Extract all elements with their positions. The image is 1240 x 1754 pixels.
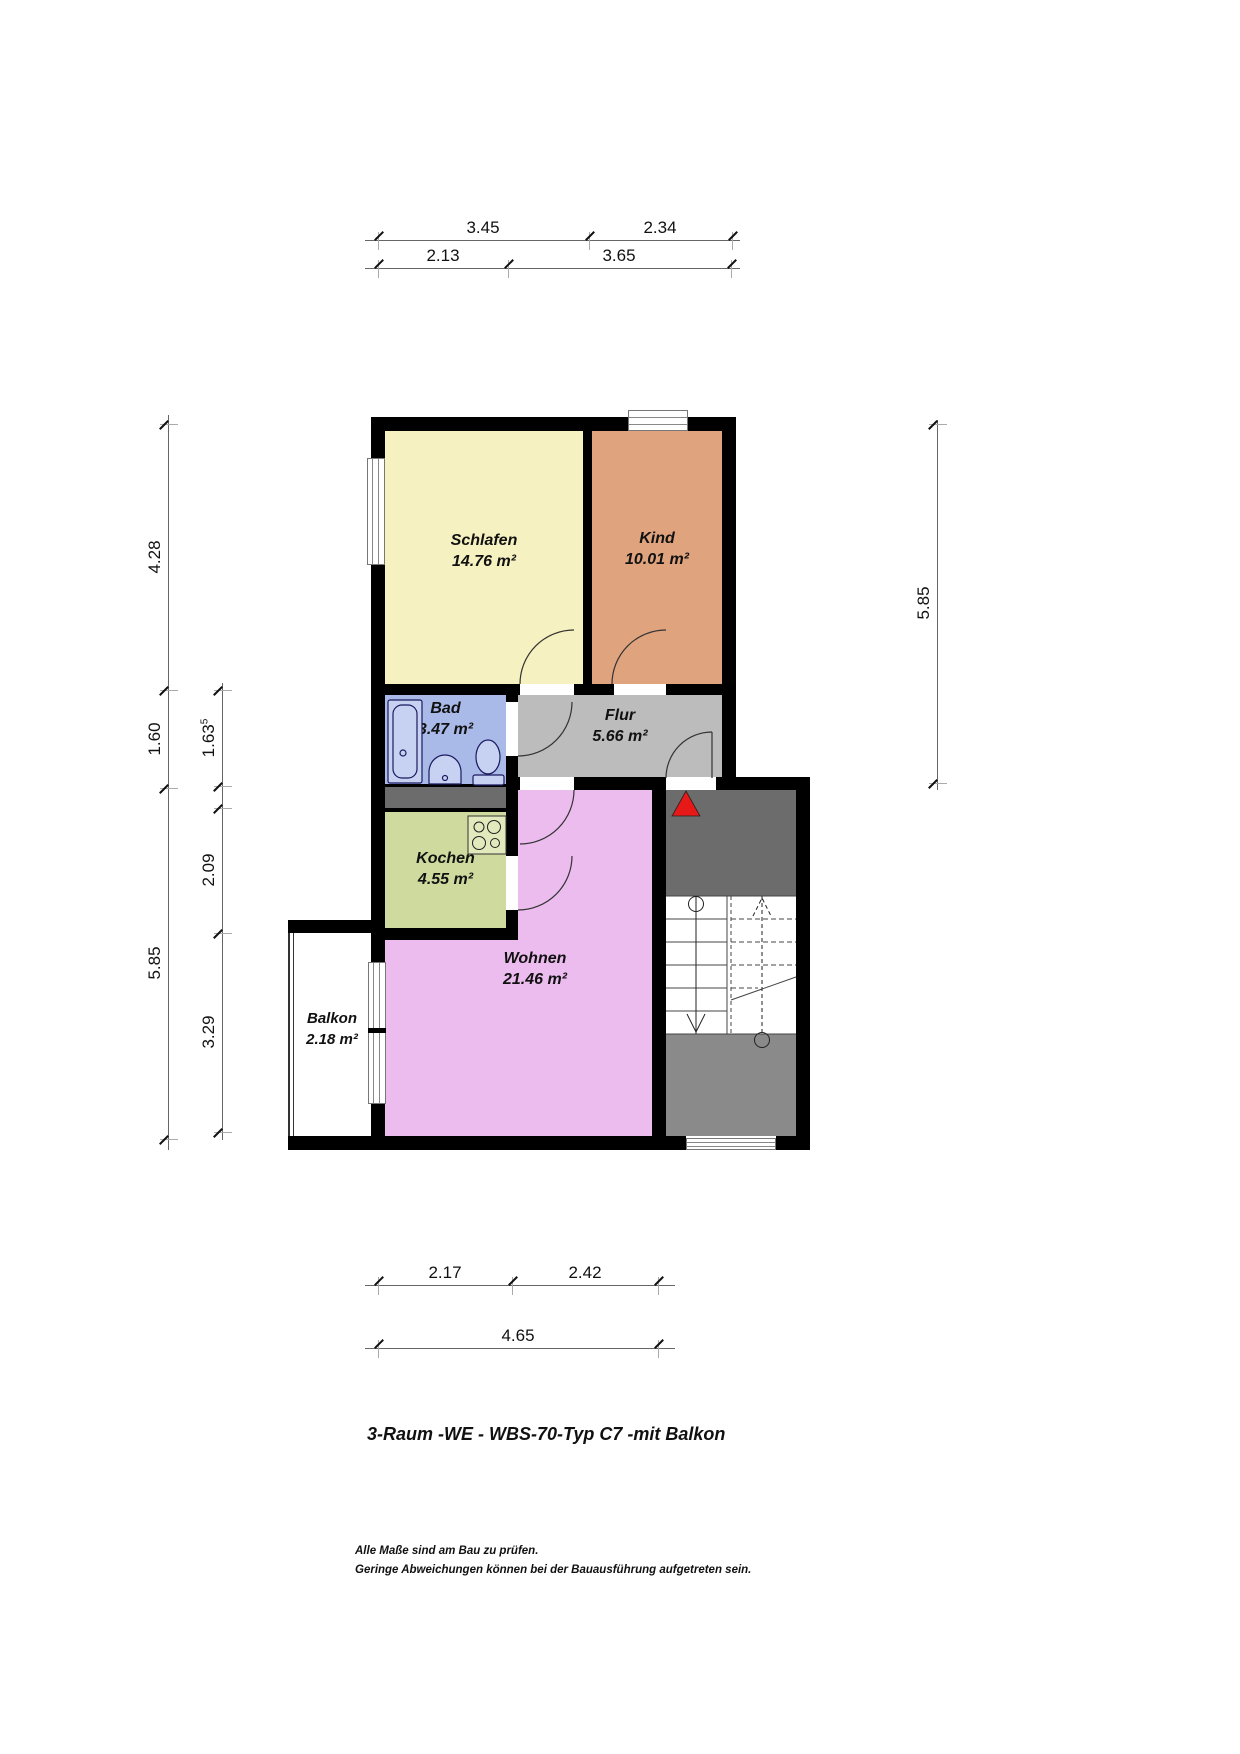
wall [371,928,518,940]
wall [574,777,666,790]
wall [583,431,592,684]
dim-value: 4.28 [145,540,165,573]
dim-value: 3.45 [466,218,499,238]
door-opening [506,856,518,910]
balcony-wall [288,920,371,933]
entrance-door-opening [666,777,716,790]
dim-value: 4.65 [501,1326,534,1346]
room-bad [385,695,506,785]
dim-bottom-row2: 4.65 [365,1348,675,1349]
door-opening [506,702,518,756]
room-balkon [293,933,371,1136]
wall [574,684,614,695]
dim-value: 5.85 [914,586,934,619]
window-schlafen [367,458,385,565]
dim-value: 2.42 [568,1263,601,1283]
wall [371,417,385,458]
dim-value: 1.60 [145,722,165,755]
room-wohnen [385,940,518,1136]
dim-top-row2: 2.13 3.65 [365,268,740,269]
balcony-railing [288,933,294,1136]
dim-value: 2.34 [643,218,676,238]
wall [506,756,518,856]
room-schlafen [385,431,583,684]
room-flur [518,695,722,777]
window-stairwell [686,1138,776,1150]
dim-value: 2.09 [199,853,219,886]
duct-shaft [385,787,518,808]
plan-title: 3-Raum -WE - WBS-70-Typ C7 -mit Balkon [367,1424,725,1445]
room-kind [592,431,722,684]
stairwell-landing-upper [666,790,796,896]
wall [371,417,628,431]
dim-value: 2.13 [426,246,459,266]
dim-value: 2.17 [428,1263,461,1283]
dim-bottom-row1: 2.17 2.42 [365,1285,675,1286]
dim-left-outer: 4.28 1.60 5.85 [168,415,169,1150]
dim-value: 3.65 [602,246,635,266]
wall [722,417,736,790]
wall [506,695,518,702]
wall [371,565,385,962]
note-line1: Alle Maße sind am Bau zu prüfen. [355,1542,538,1561]
floorplan-page: Schlafen 14.76 m² Kind 10.01 m² Bad 3.47… [0,0,1240,1754]
wall [371,684,520,695]
shaft-edge [385,784,518,787]
dim-right: 5.85 [937,420,938,790]
door-opening [614,684,666,695]
dim-value: 3.29 [199,1015,219,1048]
balcony-door-window [368,962,386,1104]
stairwell-landing-lower [666,1034,796,1136]
wall [371,1104,385,1150]
window-kind [628,410,688,431]
dim-value: 5.85 [145,946,165,979]
note-line2: Geringe Abweichungen können bei der Baua… [355,1561,751,1580]
room-kochen [385,812,506,928]
stairwell-stairs [666,896,796,1034]
door-opening [520,684,574,695]
wall [506,910,518,940]
wall [796,777,810,1150]
shaft-edge [385,808,518,812]
balcony-door-divider [368,1028,386,1033]
wall [652,790,666,1150]
dim-left-inner: 1.635 2.09 3.29 [222,683,223,1140]
dim-top-row1: 3.45 2.34 [365,240,740,241]
door-opening [520,777,574,790]
wall [288,1136,686,1150]
room-wohnen [518,790,652,1136]
dim-value: 1.635 [199,719,219,758]
